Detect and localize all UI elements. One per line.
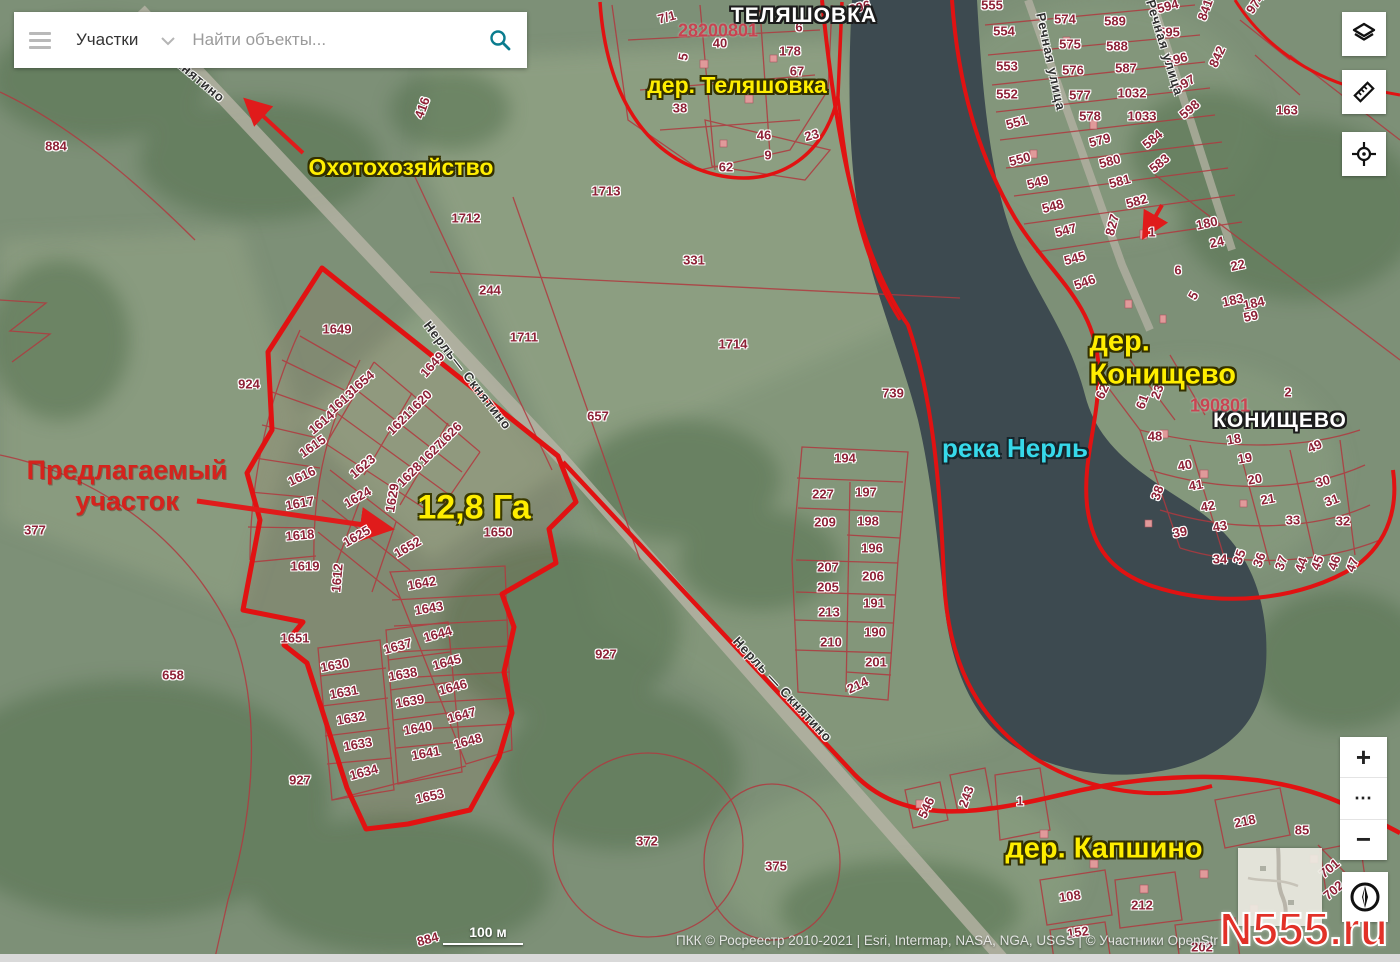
search-button[interactable] xyxy=(473,12,527,68)
search-category-label[interactable]: Участки xyxy=(76,30,138,50)
menu-button[interactable] xyxy=(14,12,66,68)
hamburger-icon xyxy=(29,32,51,35)
map-application-window: 8848964169243776588847/14056178673846239… xyxy=(0,0,1400,962)
scale-line xyxy=(443,943,523,945)
zoom-more-button[interactable]: ⋯ xyxy=(1340,778,1387,819)
scale-label: 100 м xyxy=(469,924,507,940)
map-canvas[interactable]: 8848964169243776588847/14056178673846239… xyxy=(0,0,1400,962)
zoom-in-button[interactable]: + xyxy=(1340,737,1387,778)
page-bottom-edge xyxy=(0,954,1400,962)
search-icon xyxy=(489,29,511,51)
crosshair-icon xyxy=(1351,141,1377,167)
ruler-icon xyxy=(1351,79,1377,105)
zoom-out-button[interactable]: − xyxy=(1340,820,1387,860)
ruler-button[interactable] xyxy=(1342,70,1386,114)
search-bar: Участки xyxy=(14,12,527,68)
zoom-control-group: + ⋯ − xyxy=(1340,737,1387,860)
scale-bar: 100 м xyxy=(433,924,543,945)
map-attribution: ПКК © Росреестр 2010-2021 | Esri, Interm… xyxy=(676,933,1218,948)
site-watermark: N555.ru xyxy=(1219,902,1388,956)
layers-button[interactable] xyxy=(1342,12,1386,56)
satellite-map-art xyxy=(0,0,1400,962)
search-input[interactable] xyxy=(190,29,473,51)
locate-button[interactable] xyxy=(1342,132,1386,176)
layers-icon xyxy=(1351,21,1377,47)
chevron-down-icon[interactable] xyxy=(160,33,176,51)
